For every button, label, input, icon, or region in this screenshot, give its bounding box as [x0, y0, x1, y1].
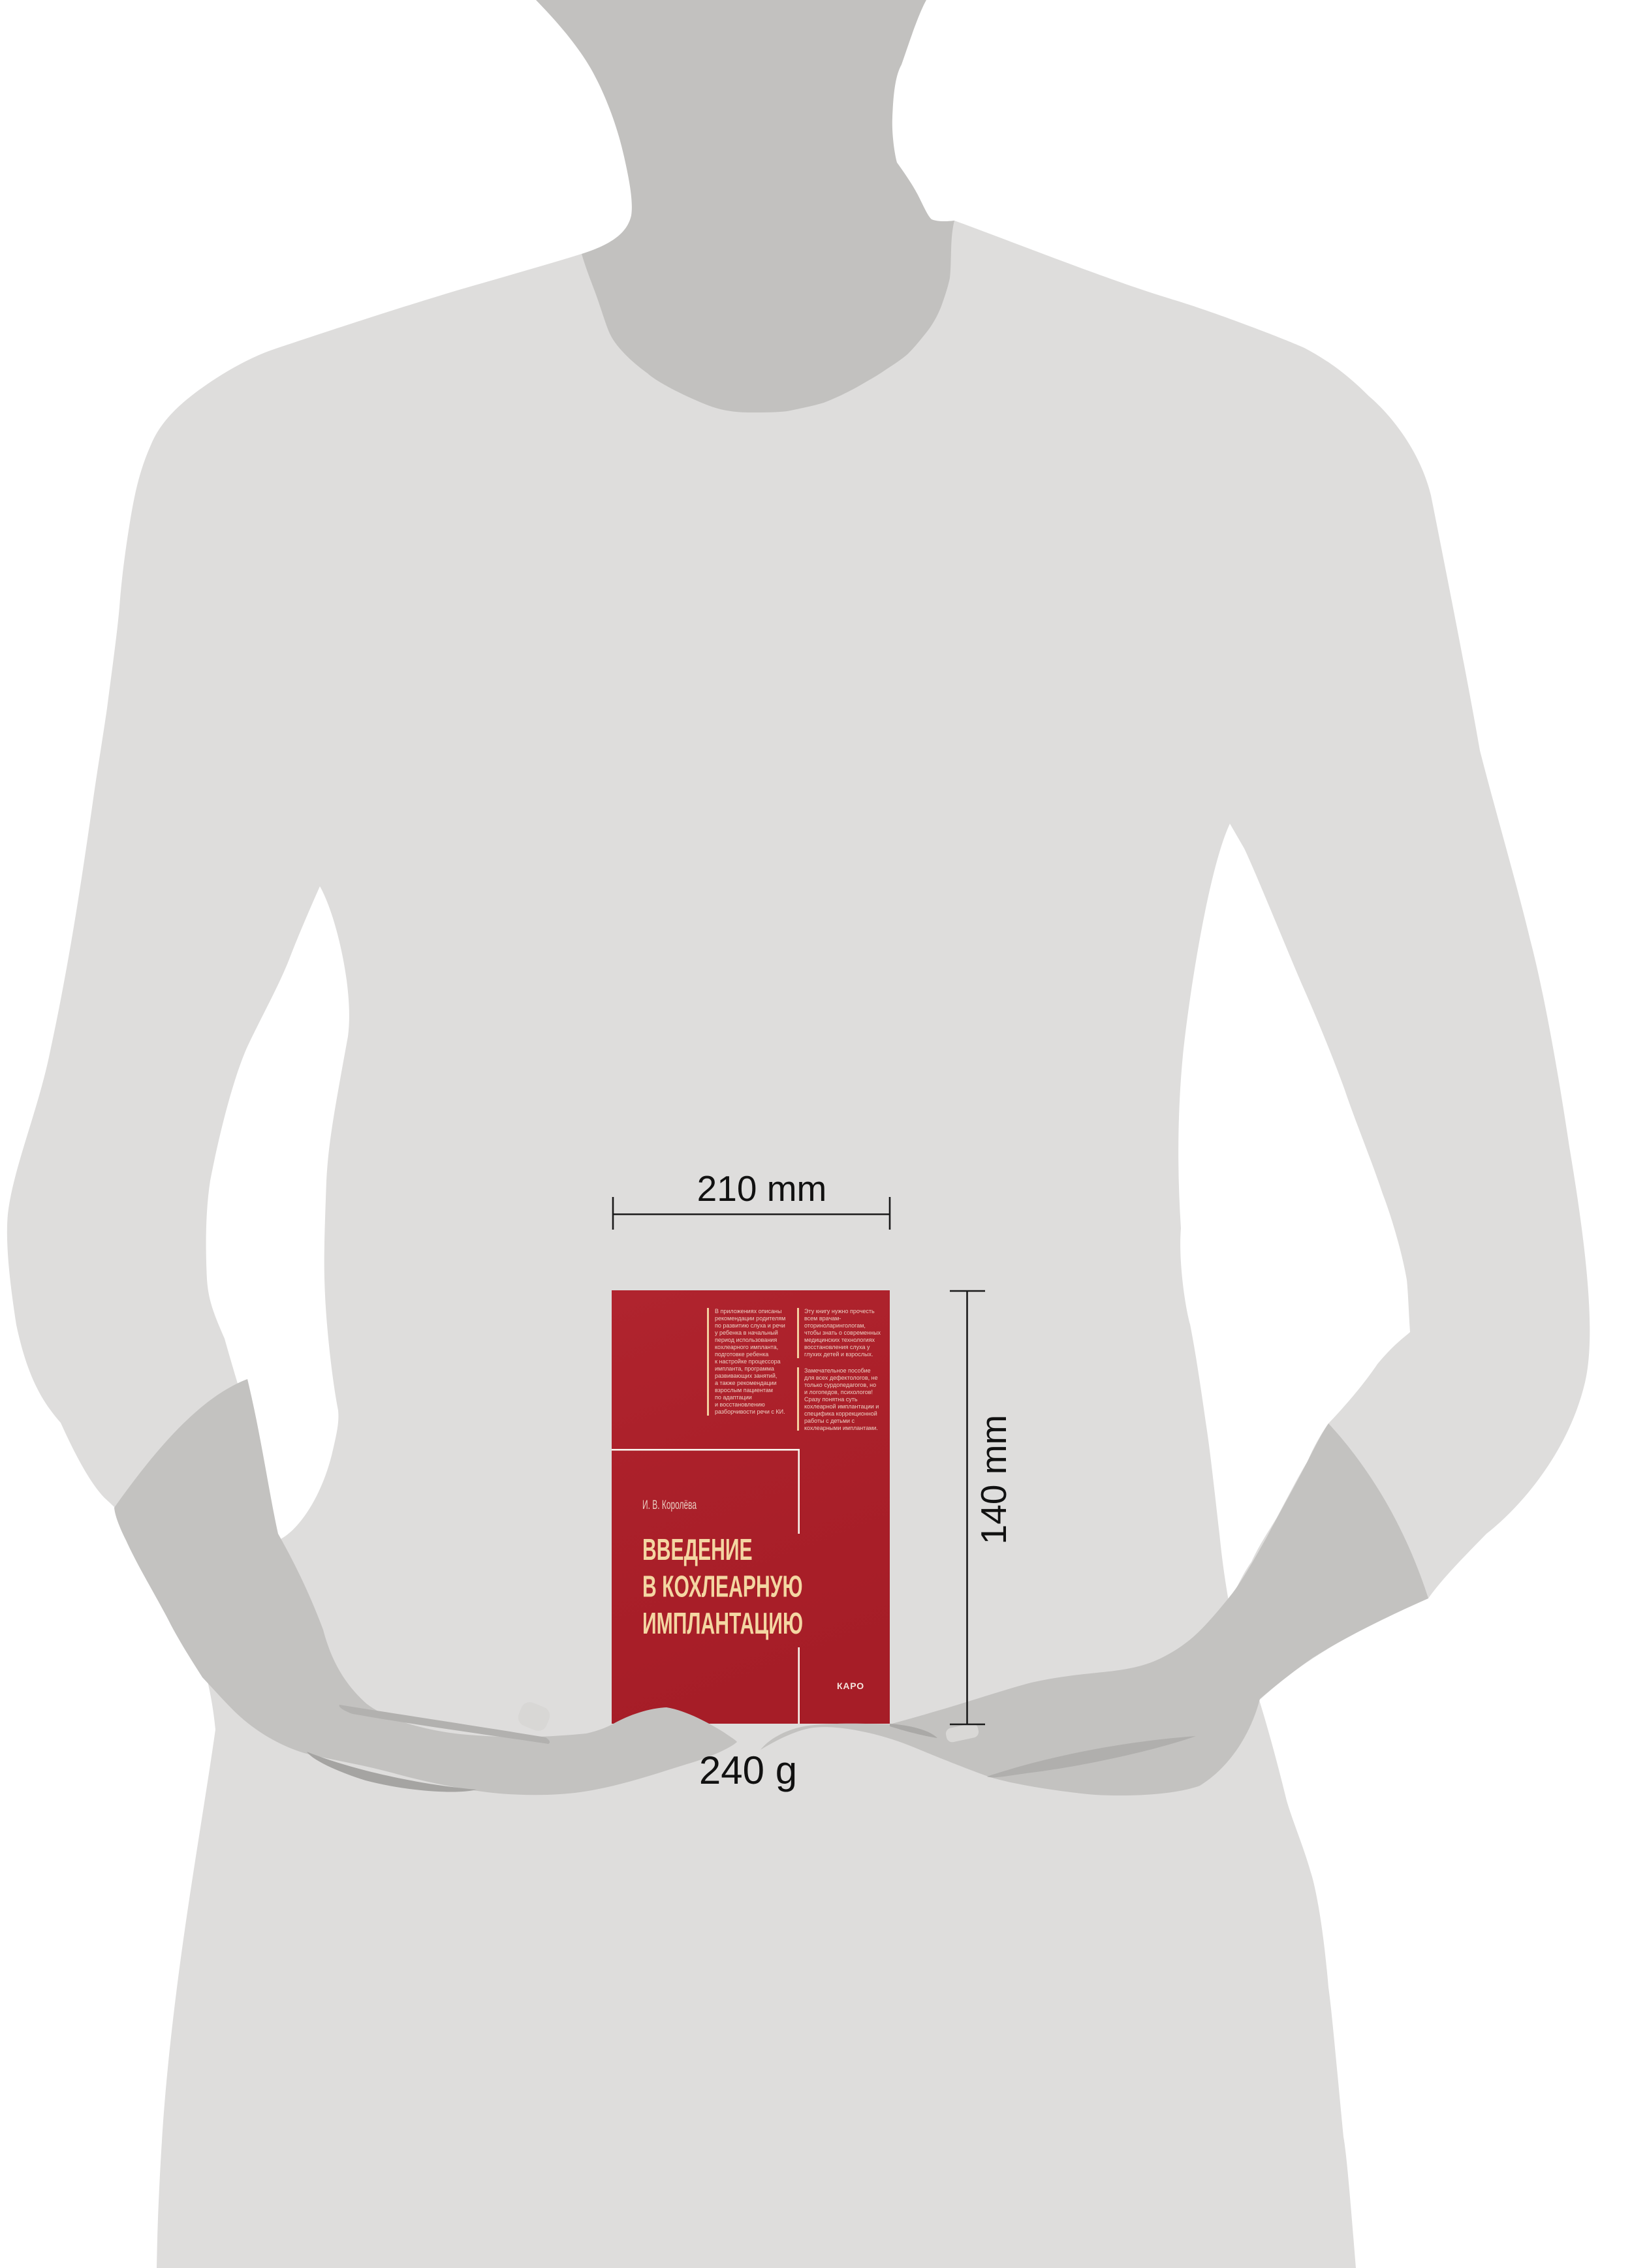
svg-text:ИМПЛАНТАЦИЮ: ИМПЛАНТАЦИЮ	[642, 1608, 803, 1641]
svg-text:210 mm: 210 mm	[697, 1168, 827, 1209]
svg-text:у ребенка в начальный: у ребенка в начальный	[715, 1329, 778, 1336]
svg-text:кохлеарными имплантами.: кохлеарными имплантами.	[804, 1425, 878, 1431]
svg-text:ВВЕДЕНИЕ: ВВЕДЕНИЕ	[642, 1534, 753, 1567]
svg-text:и логопедов, психологов!: и логопедов, психологов!	[804, 1389, 873, 1395]
svg-text:а также рекомендации: а также рекомендации	[715, 1380, 777, 1386]
svg-text:И. В. Королёва: И. В. Королёва	[642, 1499, 697, 1512]
svg-text:всем врачам-: всем врачам-	[804, 1315, 841, 1322]
svg-text:В КОХЛЕАРНУЮ: В КОХЛЕАРНУЮ	[642, 1570, 803, 1604]
svg-text:восстановления слуха у: восстановления слуха у	[804, 1344, 870, 1350]
svg-text:кохлеарной имплантации и: кохлеарной имплантации и	[804, 1403, 879, 1410]
svg-text:В приложениях описаны: В приложениях описаны	[715, 1308, 781, 1314]
svg-text:медицинских технологиях: медицинских технологиях	[804, 1337, 875, 1343]
svg-text:рекомендации родителям: рекомендации родителям	[715, 1315, 785, 1322]
svg-text:по развитию слуха и речи: по развитию слуха и речи	[715, 1322, 785, 1329]
svg-text:для всех дефектологов, не: для всех дефектологов, не	[804, 1375, 878, 1381]
svg-text:только сурдопедагогов, но: только сурдопедагогов, но	[804, 1382, 876, 1388]
svg-text:кохлеарного импланта,: кохлеарного импланта,	[715, 1344, 778, 1350]
svg-text:240 g: 240 g	[699, 1748, 797, 1792]
svg-text:чтобы знать о современных: чтобы знать о современных	[804, 1329, 881, 1336]
svg-text:взрослым пациентам: взрослым пациентам	[715, 1387, 773, 1393]
svg-text:работы с детьми с: работы с детьми с	[804, 1418, 855, 1424]
svg-text:подготовке ребенка: подготовке ребенка	[715, 1351, 768, 1358]
svg-text:Замечательное пособие: Замечательное пособие	[804, 1367, 871, 1374]
svg-text:развивающих занятий,: развивающих занятий,	[715, 1373, 777, 1379]
svg-text:Эту книгу нужно прочесть: Эту книгу нужно прочесть	[804, 1308, 875, 1314]
svg-text:импланта, программа: импланта, программа	[715, 1365, 774, 1372]
svg-text:Сразу понятна суть: Сразу понятна суть	[804, 1396, 858, 1403]
svg-text:и восстановлению: и восстановлению	[715, 1401, 765, 1408]
svg-text:оториноларингологам,: оториноларингологам,	[804, 1322, 866, 1329]
svg-text:к настройке процессора: к настройке процессора	[715, 1358, 781, 1365]
svg-text:по адаптации: по адаптации	[715, 1394, 752, 1401]
svg-text:140 mm: 140 mm	[973, 1415, 1014, 1545]
svg-text:глухих детей и взрослых.: глухих детей и взрослых.	[804, 1351, 873, 1358]
svg-text:период использования: период использования	[715, 1337, 777, 1343]
svg-text:специфика коррекционной: специфика коррекционной	[804, 1410, 877, 1417]
svg-text:разборчивости речи с КИ.: разборчивости речи с КИ.	[715, 1408, 785, 1415]
svg-text:КАРО: КАРО	[837, 1681, 864, 1691]
